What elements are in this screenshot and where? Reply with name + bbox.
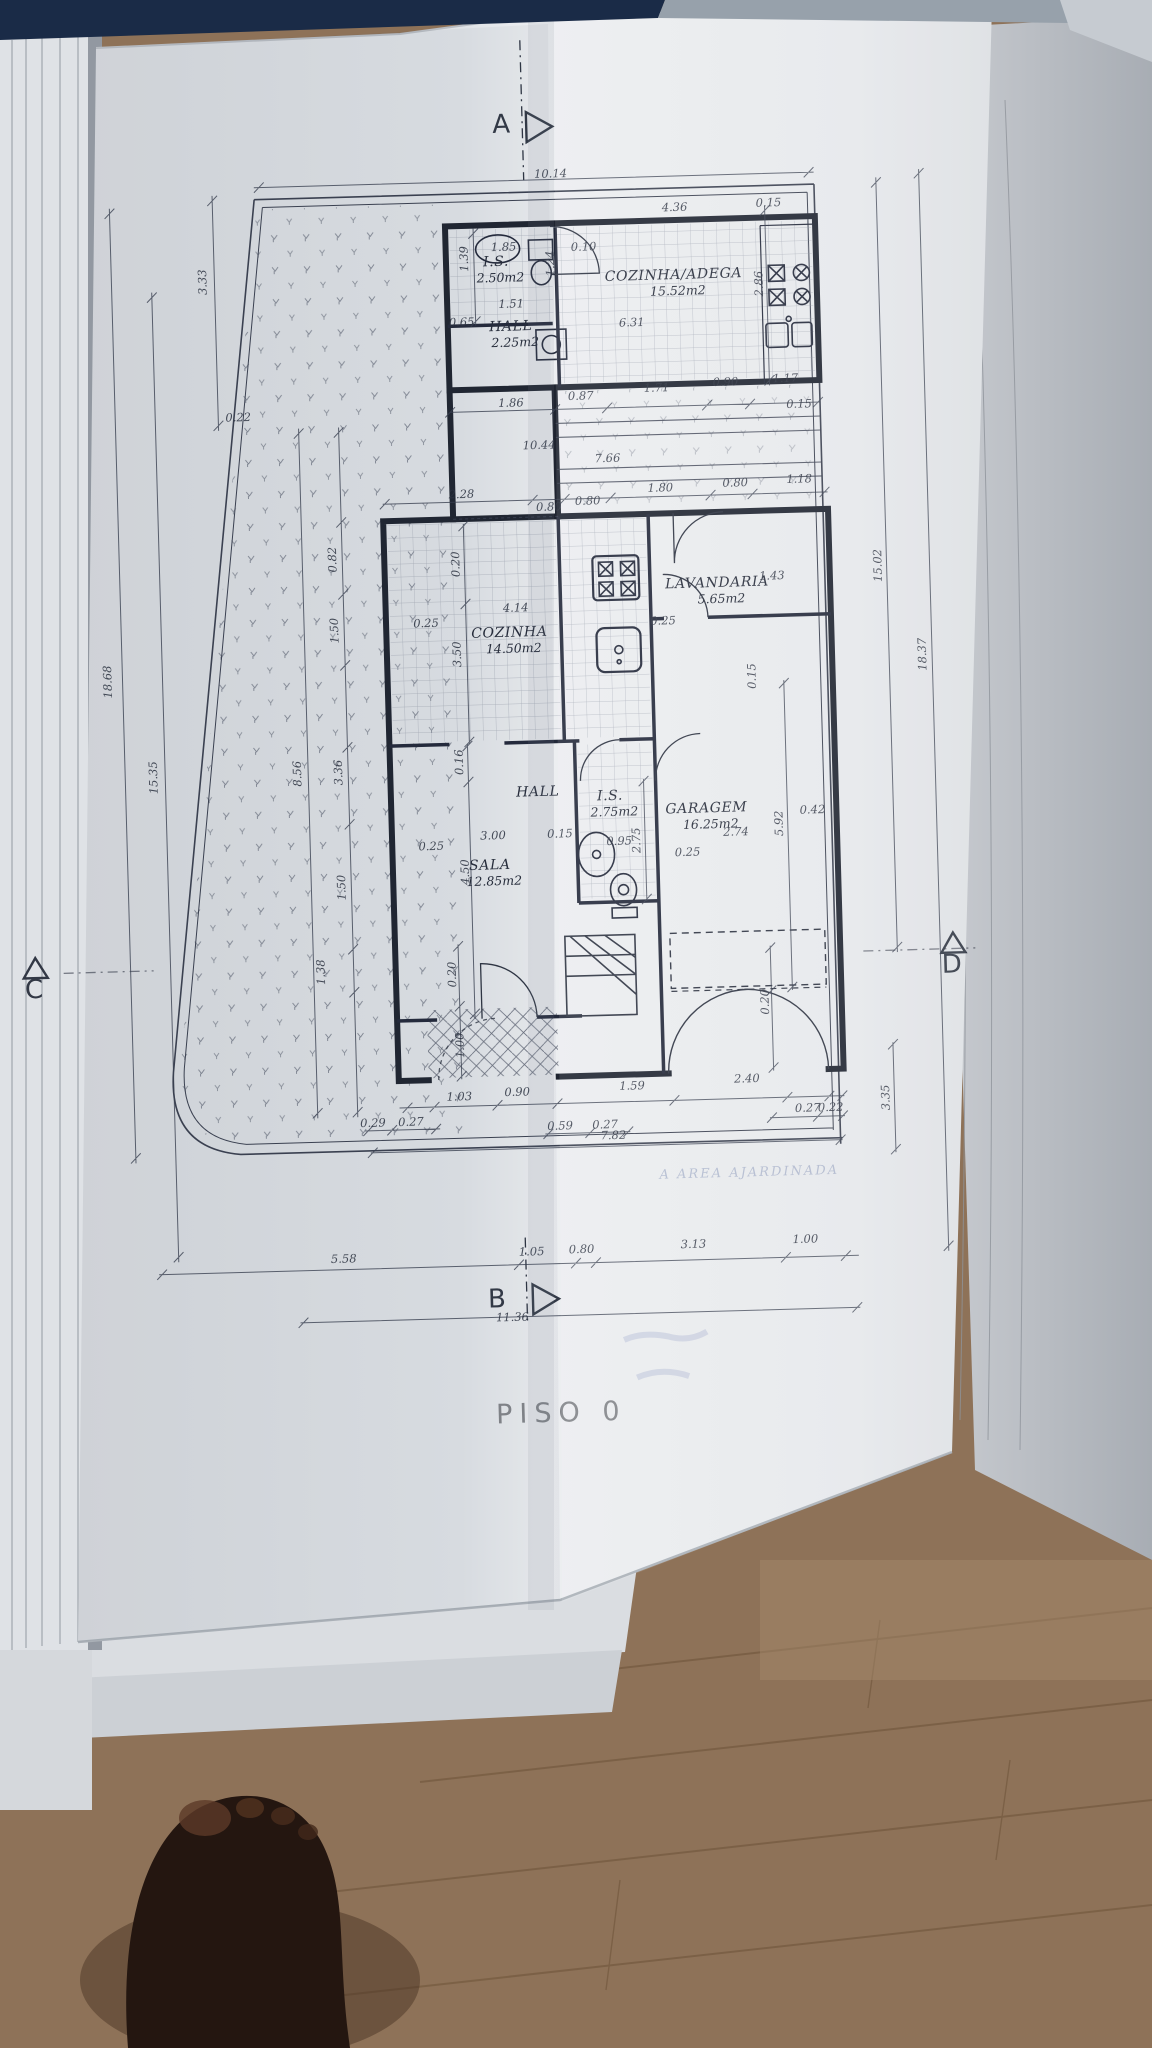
- scene: 10.144.360.150.101.851.391.241.510.652.8…: [0, 0, 1152, 2048]
- fold-crease: [528, 10, 554, 1610]
- big-toe: [179, 1800, 231, 1836]
- toe: [271, 1807, 295, 1825]
- photographed-floor-plan: { "document": { "type": "architectural f…: [0, 0, 1152, 2048]
- toe: [298, 1824, 318, 1840]
- wood-highlight: [760, 1560, 1152, 1680]
- fold-shade-left: [78, 24, 560, 1642]
- toe: [236, 1798, 264, 1818]
- fold-light-right: [554, 5, 992, 1602]
